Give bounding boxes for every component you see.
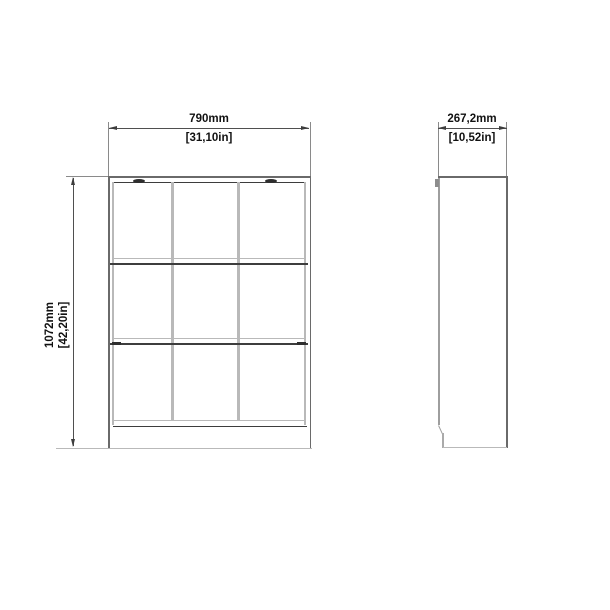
dimension-arrow-icon	[438, 126, 446, 130]
side-bottom-edge	[443, 447, 508, 449]
shelf-end-fitting-icon	[297, 342, 306, 345]
dimension-drawing: 790mm [31,10in] 267,2mm [10,52in] 1072mm…	[0, 0, 610, 610]
height-label-mm: 1072mm	[43, 265, 57, 385]
front-top-edge	[108, 176, 311, 178]
extension-line	[310, 122, 311, 176]
toe-kick-edge	[442, 433, 443, 448]
left-panel-inner-face	[112, 182, 115, 425]
vertical-divider	[237, 182, 240, 420]
side-top-fitting-icon	[435, 179, 439, 187]
cam-fitting-icon	[133, 179, 145, 183]
height-label-in: [42,20in]	[57, 265, 71, 385]
side-back-edge	[506, 176, 508, 448]
bottom-shelf-line	[113, 420, 305, 422]
height-label-group: 1072mm [42,20in]	[42, 265, 72, 385]
side-front-edge	[438, 178, 441, 425]
dimension-arrow-icon	[71, 177, 75, 185]
bottom-shelf-line	[113, 426, 307, 428]
right-panel-inner-face	[304, 182, 307, 425]
width-label-mm: 790mm	[159, 112, 259, 126]
shelf-end-fitting-icon	[112, 342, 121, 345]
vertical-divider	[171, 182, 174, 420]
shelf-line	[110, 263, 308, 265]
depth-label-mm: 267,2mm	[422, 112, 522, 126]
depth-label-in: [10,52in]	[422, 131, 522, 145]
shelf-line	[113, 258, 305, 260]
dimension-line	[438, 128, 507, 129]
dimension-arrow-icon	[499, 126, 507, 130]
dimension-line	[109, 128, 309, 129]
front-left-edge	[108, 176, 110, 448]
side-top-edge	[438, 176, 507, 178]
dimension-arrow-icon	[301, 126, 309, 130]
cam-fitting-icon	[265, 179, 277, 183]
width-label-in: [31,10in]	[159, 131, 259, 145]
ground-line	[56, 448, 312, 450]
dimension-arrow-icon	[109, 126, 117, 130]
shelf-line	[110, 343, 308, 345]
shelf-line	[113, 338, 305, 340]
dimension-arrow-icon	[71, 439, 75, 447]
dimension-line	[73, 178, 74, 446]
extension-line	[108, 122, 109, 176]
front-right-edge	[310, 176, 312, 448]
